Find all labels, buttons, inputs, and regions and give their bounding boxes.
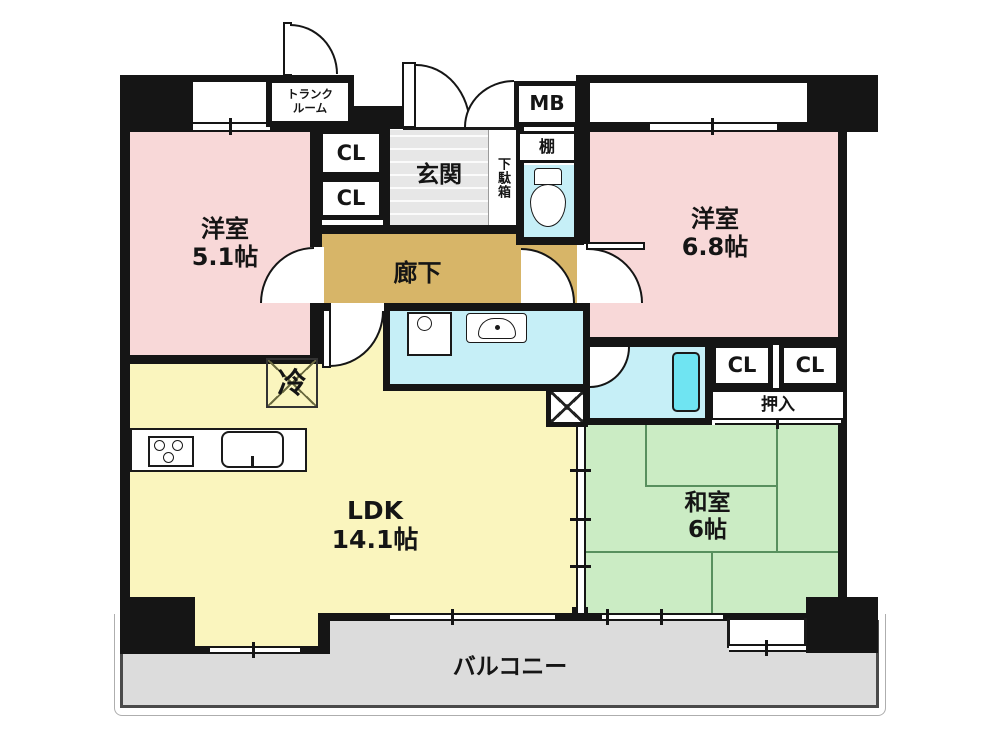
ldk-label: LDK 14.1帖 (290, 494, 460, 556)
wall (383, 122, 390, 232)
room-name: 廊下 (394, 259, 442, 287)
closet-label: CL (796, 353, 825, 378)
refrigerator-spot: 冷 (266, 358, 318, 408)
room-name: 洋室 (201, 215, 249, 243)
closet-label: CL (728, 353, 757, 378)
washing-machine-dial (417, 316, 432, 331)
ldk-door-leaf (322, 309, 331, 368)
room-name: 洋室 (691, 205, 739, 233)
trunk-room-door-arc (290, 24, 338, 74)
closet-4: CL (779, 343, 841, 388)
entrance-door-arc-2 (464, 80, 514, 127)
trunk-room-label-1: トランク (287, 88, 333, 102)
window-tick (451, 609, 454, 625)
room-size: 14.1帖 (332, 525, 419, 555)
window (390, 613, 555, 621)
tatami-line (645, 425, 647, 487)
wall (576, 75, 810, 83)
balcony-edge-bottom (120, 705, 879, 708)
closet-2: CL (318, 177, 384, 220)
tatami-line (711, 551, 713, 613)
window-tick (252, 642, 255, 658)
wall (310, 225, 518, 234)
room-size: 6帖 (688, 517, 727, 544)
washbasin-drain (495, 325, 500, 330)
floor-plan: 下駄箱 (0, 0, 1000, 750)
room-name: 玄関 (416, 162, 462, 189)
window-tick (711, 118, 714, 135)
corridor-label: 廊下 (360, 256, 475, 290)
window-tick (229, 118, 232, 135)
closet-label: CL (337, 141, 366, 166)
window-tick (765, 640, 768, 656)
balcony-edge-left (120, 653, 123, 707)
shelf: 棚 (517, 131, 577, 163)
room-name: LDK (347, 496, 403, 526)
closet-label: CL (337, 186, 366, 211)
pipe-space-box (546, 387, 588, 427)
japanese-room-label: 和室 6帖 (625, 487, 790, 547)
wall (384, 303, 584, 311)
toilet-tank (534, 168, 562, 185)
closet-3: CL (711, 343, 773, 388)
shelf-label: 棚 (539, 138, 555, 157)
entrance-label: 玄関 (398, 160, 480, 192)
wall (120, 597, 195, 653)
entrance-door-leaf (402, 62, 416, 128)
ldk-floor-2 (320, 362, 583, 613)
wall (383, 303, 390, 391)
kitchen-faucet (251, 456, 254, 468)
balcony-label: バルコニー (380, 652, 640, 684)
window (210, 646, 300, 654)
room-size: 6.8帖 (682, 233, 749, 261)
trunk-room: トランク ルーム (266, 77, 354, 127)
wall (583, 418, 712, 425)
entrance-door-arc (416, 64, 471, 127)
refrigerator-label: 冷 (277, 366, 306, 400)
shoe-cabinet-label: 下駄箱 (493, 157, 512, 199)
wall (583, 340, 712, 347)
shoe-cabinet: 下駄箱 (488, 130, 516, 226)
meter-box: MB (514, 81, 580, 127)
western-room-2-label: 洋室 6.8帖 (630, 202, 800, 264)
oshiire-label: 押入 (761, 395, 795, 415)
window-tick (660, 609, 663, 625)
room-name: 和室 (685, 490, 731, 517)
partition-tick (570, 518, 591, 521)
oshiire-closet: 押入 (711, 390, 845, 420)
room-name: バルコニー (453, 654, 568, 681)
bathtub (672, 352, 700, 412)
meter-box-label: MB (529, 92, 564, 116)
western-room-1-label: 洋室 5.1帖 (140, 212, 310, 274)
stove-burner (163, 452, 174, 463)
room-size: 5.1帖 (192, 243, 259, 271)
partition-tick (570, 469, 591, 472)
wall (120, 75, 130, 653)
door-opening (331, 303, 384, 311)
closet-1: CL (318, 129, 384, 177)
trunk-room-label-2: ルーム (293, 102, 327, 116)
stove-burner (154, 440, 165, 451)
window-tick (606, 609, 609, 625)
stove-burner (172, 440, 183, 451)
wall (806, 597, 878, 653)
partition-tick (570, 565, 591, 568)
